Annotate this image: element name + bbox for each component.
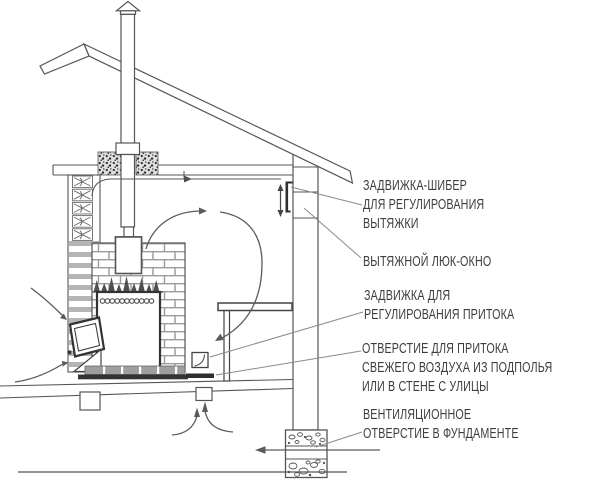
duct-flow-arrow bbox=[184, 176, 192, 183]
label-exhaust-damper: ЗАДВИЖКА-ШИБЕР ДЛЯ РЕГУЛИРОВАНИЯ ВЫТЯЖКИ bbox=[363, 177, 484, 234]
label-foundation-vent: ВЕНТИЛЯЦИОННОЕ ОТВЕРСТИЕ В ФУНДАМЕНТЕ bbox=[363, 406, 519, 444]
damper-arrow-down bbox=[278, 210, 284, 217]
chimney-cap bbox=[117, 2, 140, 11]
ceiling bbox=[53, 165, 293, 175]
label-line: РЕГУЛИРОВАНИЯ ПРИТОКА bbox=[364, 306, 514, 325]
intake-arrow-floor-level bbox=[15, 365, 62, 383]
leader-lines bbox=[210, 187, 363, 447]
chimney bbox=[116, 2, 142, 274]
stove bbox=[97, 292, 160, 368]
underfloor-arrow-left bbox=[172, 416, 197, 435]
intake-arrow-to-door bbox=[31, 288, 63, 316]
label-line: ОТВЕРСТИЕ В ФУНДАМЕНТЕ bbox=[363, 425, 519, 444]
label-line: СВЕЖЕГО ВОЗДУХА ИЗ ПОДПОЛЬЯ bbox=[362, 359, 552, 378]
bench bbox=[218, 303, 292, 381]
label-line: ЗАДВИЖКА-ШИБЕР bbox=[363, 177, 484, 196]
door-knob bbox=[68, 351, 72, 355]
glass-block-pattern bbox=[73, 176, 93, 240]
underfloor-arrow-right bbox=[205, 411, 233, 432]
floor-joists bbox=[80, 388, 212, 411]
label-line: ВЫТЯЖКИ bbox=[363, 215, 484, 234]
label-line: ИЛИ В СТЕНЕ С УЛИЦЫ bbox=[362, 378, 552, 397]
label-line: ВЫТЯЖНОЙ ЛЮК-ОКНО bbox=[363, 253, 491, 272]
damper-arrow-up bbox=[278, 184, 284, 191]
label-line: ВЕНТИЛЯЦИОННОЕ bbox=[363, 406, 519, 425]
stove-flue-box-front bbox=[116, 237, 142, 274]
chimney-pipe bbox=[121, 14, 135, 143]
shiber-damper bbox=[278, 182, 293, 218]
label-line: ДЛЯ РЕГУЛИРОВАНИЯ bbox=[363, 196, 484, 215]
label-intake-damper: ЗАДВИЖКА ДЛЯ РЕГУЛИРОВАНИЯ ПРИТОКА bbox=[364, 287, 514, 325]
label-line: ЗАДВИЖКА ДЛЯ bbox=[364, 287, 514, 306]
label-exhaust-hatch: ВЫТЯЖНОЙ ЛЮК-ОКНО bbox=[363, 253, 491, 272]
floor bbox=[0, 380, 293, 399]
stove-plinth bbox=[78, 366, 188, 379]
intake-damper-box bbox=[192, 353, 208, 368]
floor-intake-opening bbox=[186, 374, 214, 379]
label-intake-opening: ОТВЕРСТИЕ ДЛЯ ПРИТОКА СВЕЖЕГО ВОЗДУХА ИЗ… bbox=[362, 340, 552, 397]
sauna-ventilation-diagram: ЗАДВИЖКА-ШИБЕР ДЛЯ РЕГУЛИРОВАНИЯ ВЫТЯЖКИ… bbox=[0, 0, 600, 483]
label-line: ОТВЕРСТИЕ ДЛЯ ПРИТОКА bbox=[362, 340, 552, 359]
stove-vent-holes bbox=[100, 299, 154, 304]
foundation-pier bbox=[286, 430, 328, 478]
